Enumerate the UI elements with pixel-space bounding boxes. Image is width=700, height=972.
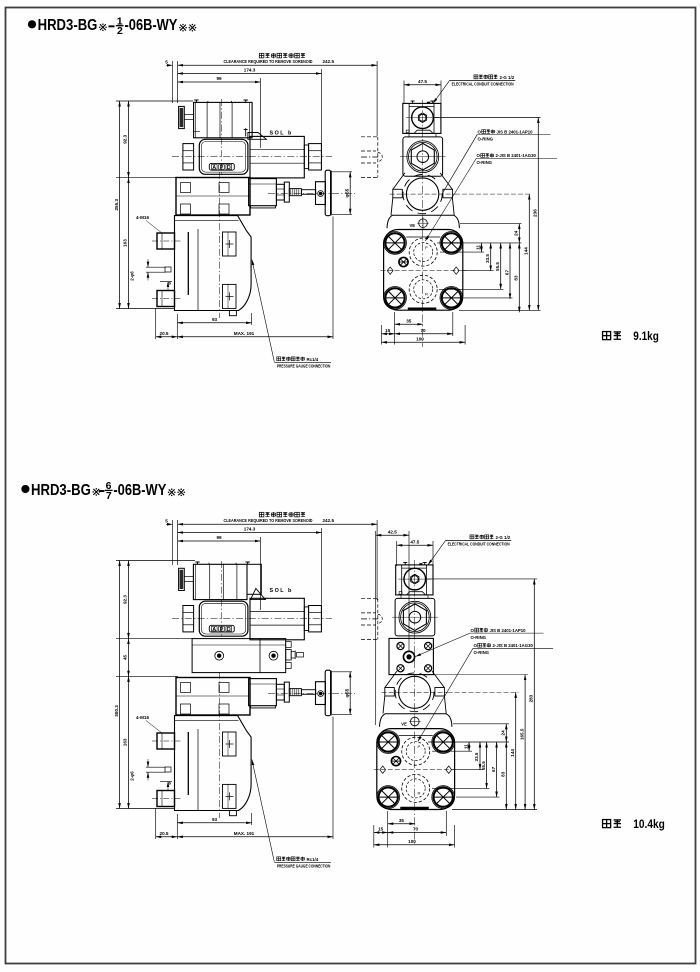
svg-text:VE: VE bbox=[401, 721, 407, 726]
svg-text:33.5: 33.5 bbox=[485, 254, 490, 263]
svg-text:Rc1/4: Rc1/4 bbox=[307, 857, 319, 862]
svg-text:-06B-WY: -06B-WY bbox=[113, 482, 166, 499]
svg-text:S O L: S O L bbox=[270, 588, 285, 594]
svg-text:15: 15 bbox=[378, 827, 384, 832]
svg-text:2-φ6: 2-φ6 bbox=[130, 771, 135, 781]
svg-text:20.5: 20.5 bbox=[160, 331, 169, 336]
svg-text:-06B-WY: -06B-WY bbox=[125, 17, 178, 34]
svg-text:24: 24 bbox=[501, 730, 506, 736]
svg-text:24: 24 bbox=[514, 230, 519, 236]
svg-text:255.3: 255.3 bbox=[114, 199, 119, 211]
svg-text:236: 236 bbox=[533, 209, 538, 217]
svg-text:55.5: 55.5 bbox=[495, 262, 500, 271]
svg-text:92.3: 92.3 bbox=[123, 595, 128, 604]
svg-text:D: D bbox=[227, 627, 231, 633]
svg-text:242.5: 242.5 bbox=[323, 518, 335, 523]
svg-text:D: D bbox=[227, 165, 231, 171]
svg-text:55.5: 55.5 bbox=[481, 761, 486, 770]
svg-text:ELECTRICAL CONDUIT CONNECTION: ELECTRICAL CONDUIT CONNECTION bbox=[452, 82, 514, 87]
svg-text:163: 163 bbox=[123, 738, 128, 746]
svg-text:O: O bbox=[471, 628, 475, 633]
svg-text:35: 35 bbox=[399, 818, 405, 823]
svg-text:S O L: S O L bbox=[270, 130, 285, 136]
svg-text:O-RING: O-RING bbox=[477, 160, 493, 165]
svg-text:5: 5 bbox=[165, 59, 168, 64]
svg-text:HRD3-BG: HRD3-BG bbox=[38, 17, 98, 34]
svg-text:11: 11 bbox=[476, 245, 481, 250]
svg-text:A: A bbox=[212, 165, 216, 171]
svg-text:20.5: 20.5 bbox=[160, 831, 169, 836]
svg-text:2-JIS B 2401-1AG30: 2-JIS B 2401-1AG30 bbox=[496, 153, 537, 158]
svg-text:70: 70 bbox=[413, 827, 419, 832]
svg-text:CLEARANCE REQUIRED TO REMOVE S: CLEARANCE REQUIRED TO REMOVE SORENOID bbox=[224, 59, 313, 64]
svg-text:99: 99 bbox=[216, 76, 222, 81]
svg-text:PRESSURE GAUGE CONNECTION: PRESSURE GAUGE CONNECTION bbox=[277, 364, 331, 369]
svg-text:67: 67 bbox=[491, 766, 496, 772]
svg-text:MAX. 191: MAX. 191 bbox=[234, 831, 255, 836]
svg-text:47.5: 47.5 bbox=[410, 540, 419, 545]
svg-text:35: 35 bbox=[406, 319, 412, 324]
svg-text:ELECTRICAL CONDUIT CONNECTION: ELECTRICAL CONDUIT CONNECTION bbox=[448, 542, 510, 547]
svg-text:92.3: 92.3 bbox=[123, 134, 128, 143]
svg-text:O-RING: O-RING bbox=[471, 635, 487, 640]
svg-text:MAX. 191: MAX. 191 bbox=[234, 331, 255, 336]
svg-text:φ55: φ55 bbox=[344, 188, 350, 197]
svg-text:JIS B 2401-1AP10: JIS B 2401-1AP10 bbox=[497, 129, 534, 134]
svg-text:45: 45 bbox=[123, 654, 128, 660]
svg-text:JIS B 2401-1AP10: JIS B 2401-1AP10 bbox=[490, 628, 527, 633]
svg-text:42.5: 42.5 bbox=[388, 529, 397, 534]
svg-text:33.5: 33.5 bbox=[474, 752, 479, 761]
svg-text:Rc1/4: Rc1/4 bbox=[307, 357, 319, 362]
svg-text:2: 2 bbox=[117, 25, 123, 37]
svg-text:VE: VE bbox=[410, 223, 416, 228]
svg-text:2-JIS B 2401-1AG30: 2-JIS B 2401-1AG30 bbox=[493, 643, 534, 648]
svg-text:144: 144 bbox=[510, 749, 515, 757]
svg-text:R: R bbox=[425, 291, 428, 296]
svg-text:2-φ6: 2-φ6 bbox=[130, 271, 135, 281]
svg-text:PRESSURE GAUGE CONNECTION: PRESSURE GAUGE CONNECTION bbox=[277, 864, 331, 869]
svg-text:93: 93 bbox=[212, 317, 218, 322]
svg-text:O: O bbox=[474, 643, 478, 648]
svg-text:47.5: 47.5 bbox=[418, 79, 427, 84]
svg-text:R: R bbox=[418, 790, 421, 795]
svg-text:7: 7 bbox=[106, 490, 112, 502]
svg-text:15: 15 bbox=[385, 328, 391, 333]
svg-text:O-RING: O-RING bbox=[478, 136, 494, 141]
svg-text:165.5: 165.5 bbox=[519, 728, 524, 740]
svg-text:O-RING: O-RING bbox=[474, 650, 490, 655]
svg-text:CLEARANCE REQUIRED TO REMOVE S: CLEARANCE REQUIRED TO REMOVE SORENOID bbox=[224, 518, 313, 523]
svg-text:O: O bbox=[478, 129, 482, 134]
svg-text:174.3: 174.3 bbox=[244, 68, 256, 73]
svg-text:P: P bbox=[220, 165, 224, 171]
svg-text:P: P bbox=[418, 744, 421, 749]
svg-text:283: 283 bbox=[529, 694, 534, 702]
svg-text:100: 100 bbox=[408, 839, 416, 844]
svg-text:P: P bbox=[425, 245, 428, 250]
svg-text:P: P bbox=[220, 627, 224, 633]
svg-text:174.3: 174.3 bbox=[244, 527, 256, 532]
svg-text:144: 144 bbox=[524, 247, 529, 255]
svg-text:67: 67 bbox=[504, 270, 509, 276]
svg-text:10.4kg: 10.4kg bbox=[633, 817, 665, 831]
svg-text:83: 83 bbox=[514, 275, 519, 281]
svg-text:5: 5 bbox=[165, 518, 168, 523]
svg-text:A: A bbox=[212, 627, 216, 633]
svg-text:163: 163 bbox=[123, 239, 128, 247]
svg-text:2-G 1/2: 2-G 1/2 bbox=[496, 535, 511, 540]
svg-text:φ55: φ55 bbox=[344, 688, 350, 697]
svg-text:4-M16: 4-M16 bbox=[136, 215, 149, 220]
svg-text:100: 100 bbox=[416, 337, 424, 342]
svg-text:4-M16: 4-M16 bbox=[136, 715, 149, 720]
svg-text:2-G 1/2: 2-G 1/2 bbox=[500, 75, 515, 80]
svg-text:O: O bbox=[477, 153, 481, 158]
svg-text:242.5: 242.5 bbox=[323, 59, 335, 64]
svg-text:83: 83 bbox=[501, 771, 506, 777]
svg-text:99: 99 bbox=[216, 535, 222, 540]
svg-text:9.1kg: 9.1kg bbox=[633, 329, 659, 343]
svg-text:300.3: 300.3 bbox=[114, 705, 119, 717]
svg-text:70: 70 bbox=[420, 328, 426, 333]
svg-text:93: 93 bbox=[212, 817, 218, 822]
svg-text:HRD3-BG: HRD3-BG bbox=[31, 482, 91, 499]
svg-text:11: 11 bbox=[463, 744, 468, 749]
